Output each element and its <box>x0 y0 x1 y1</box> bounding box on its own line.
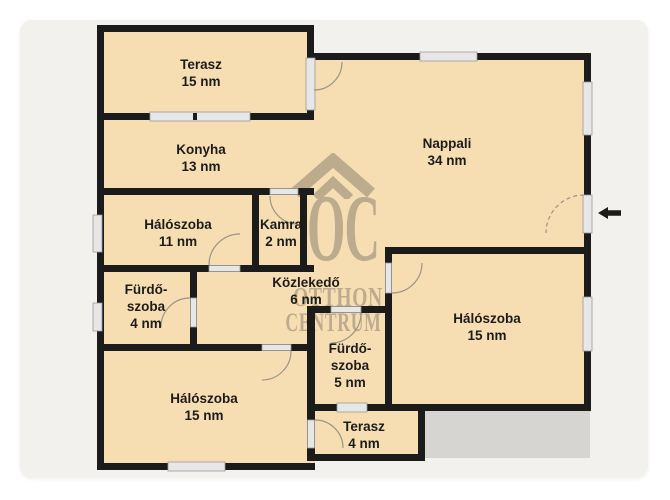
walls-layer <box>0 0 670 500</box>
room-name: szoba <box>125 298 168 315</box>
room-label-kamra: Kamra 2 nm <box>260 216 302 250</box>
room-area: 34 nm <box>423 152 472 169</box>
room-area: 15 nm <box>180 73 222 90</box>
room-area: 11 nm <box>144 233 212 250</box>
room-label-konyha: Konyha 13 nm <box>176 141 226 175</box>
room-name: Kamra <box>260 216 302 233</box>
room-label-haloszoba-11: Hálószoba 11 nm <box>144 216 212 250</box>
room-label-kozlekedo: Közlekedő 6 nm <box>272 274 340 308</box>
room-name: Hálószoba <box>453 310 521 327</box>
room-label-haloszoba-jobb: Hálószoba 15 nm <box>453 310 521 344</box>
room-label-furdoszoba-4: Fürdő- szoba 4 nm <box>125 281 168 332</box>
room-label-terasz-also: Terasz 4 nm <box>343 418 385 452</box>
room-area: 6 nm <box>272 291 340 308</box>
room-area: 2 nm <box>260 233 302 250</box>
room-name: Fürdő- <box>125 281 168 298</box>
room-name: Hálószoba <box>170 390 238 407</box>
room-name: Fürdő- <box>329 340 372 357</box>
window-mullion <box>193 113 197 120</box>
entrance-arrow-icon <box>597 205 623 221</box>
room-area: 5 nm <box>329 374 372 391</box>
room-label-nappali: Nappali 34 nm <box>423 135 472 169</box>
room-area: 15 nm <box>453 327 521 344</box>
room-name: Hálószoba <box>144 216 212 233</box>
room-name: Konyha <box>176 141 226 158</box>
room-area: 15 nm <box>170 407 238 424</box>
room-area: 13 nm <box>176 158 226 175</box>
room-name: szoba <box>329 357 372 374</box>
floorplan-page: OC OTTHON CENTRUM <box>0 0 670 500</box>
room-area: 4 nm <box>125 315 168 332</box>
room-label-haloszoba-bal: Hálószoba 15 nm <box>170 390 238 424</box>
room-label-furdoszoba-5: Fürdő- szoba 5 nm <box>329 340 372 391</box>
room-label-terasz-felso: Terasz 15 nm <box>180 56 222 90</box>
room-name: Terasz <box>343 418 385 435</box>
room-name: Terasz <box>180 56 222 73</box>
room-name: Közlekedő <box>272 274 340 291</box>
room-name: Nappali <box>423 135 472 152</box>
room-area: 4 nm <box>343 435 385 452</box>
